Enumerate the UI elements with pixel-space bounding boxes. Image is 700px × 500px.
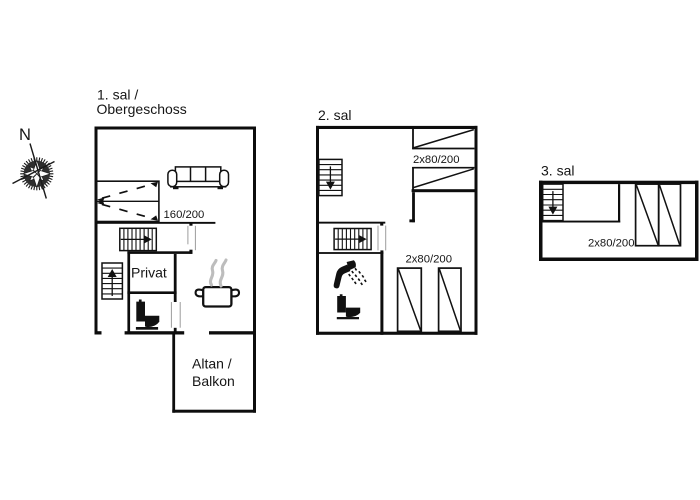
svg-text:2x80/200: 2x80/200	[413, 154, 459, 166]
svg-text:Balkon: Balkon	[192, 373, 235, 389]
svg-text:Altan /: Altan /	[192, 356, 232, 372]
svg-text:3. sal: 3. sal	[541, 162, 574, 178]
svg-text:2x80/200: 2x80/200	[406, 253, 452, 265]
svg-text:2. sal: 2. sal	[318, 107, 351, 123]
svg-text:Privat: Privat	[131, 265, 167, 281]
svg-text:N: N	[19, 126, 31, 144]
svg-text:160/200: 160/200	[164, 209, 205, 221]
svg-text:Obergeschoss: Obergeschoss	[97, 101, 187, 117]
svg-text:2x80/200: 2x80/200	[588, 237, 634, 249]
